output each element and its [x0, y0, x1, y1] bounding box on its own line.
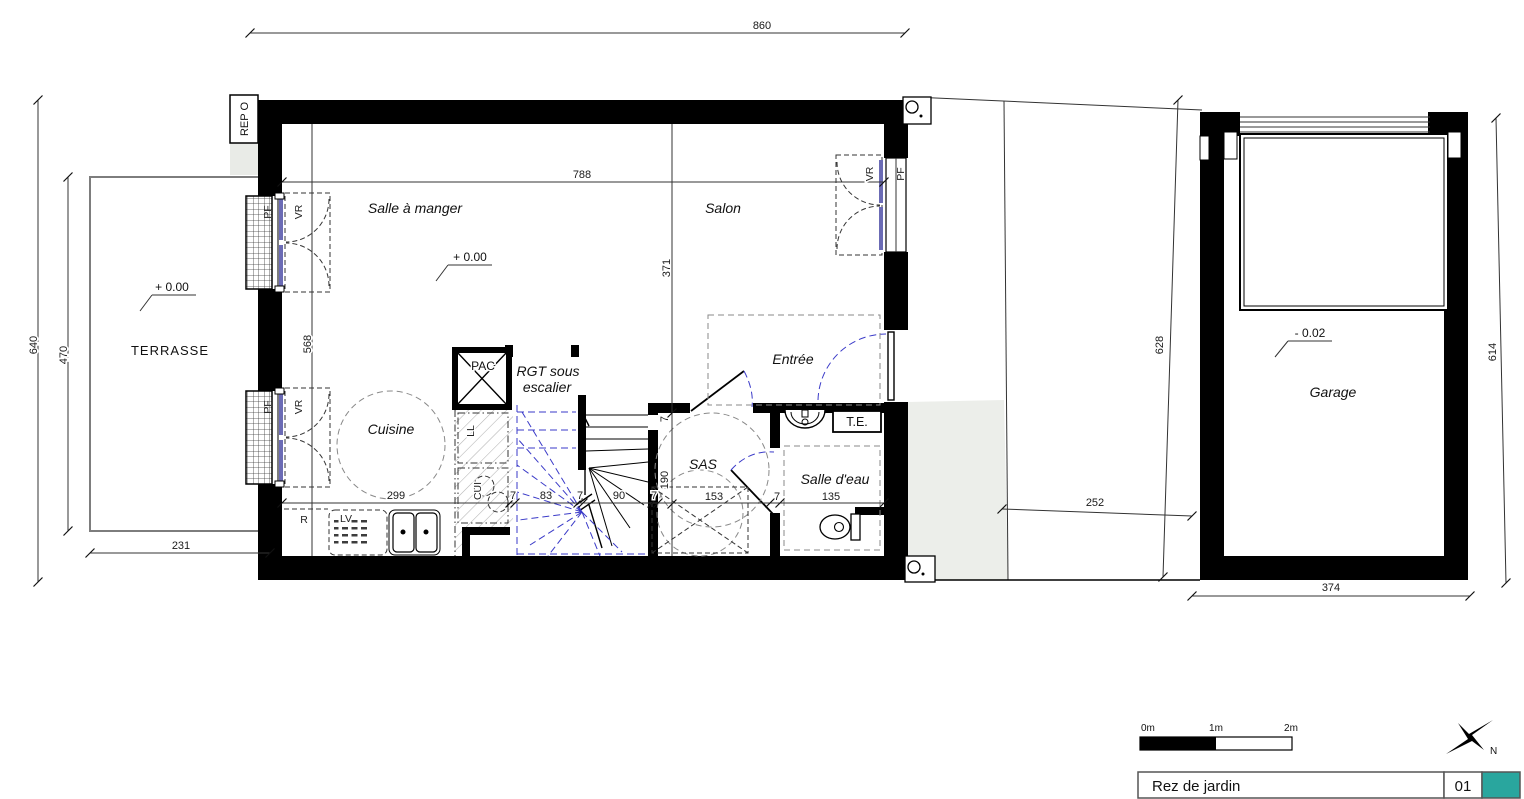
- pf-label: PF: [895, 167, 907, 180]
- drain-icon: [401, 530, 406, 535]
- dim-cuisine-w: 299: [387, 490, 405, 502]
- dim-garage-right: 614: [1487, 343, 1499, 361]
- dim-7: 7: [577, 490, 583, 502]
- scale-2m: 2m: [1284, 723, 1298, 734]
- title-block: Rez de jardin 01: [1138, 772, 1520, 798]
- room-label-salle-a-manger: Salle à manger: [368, 200, 464, 216]
- garage-door-track: [1240, 117, 1430, 132]
- dim-top: 860: [753, 20, 771, 32]
- vr-label: VR: [293, 204, 305, 219]
- dim-garage-left: 628: [1154, 336, 1166, 354]
- dim-sde-w: 135: [822, 491, 840, 503]
- side-path: [908, 400, 1008, 580]
- dim-left-h: 568: [302, 335, 314, 353]
- entrance-door: [818, 332, 894, 400]
- cui-label: CUI: [472, 482, 484, 500]
- pf-label: PF: [262, 205, 274, 218]
- site-area: [230, 97, 1202, 580]
- fridge-label: R: [300, 514, 308, 526]
- level-zero-terrasse: + 0.00: [155, 280, 189, 294]
- terrasse-step: [230, 143, 258, 175]
- dim-7: 7: [510, 490, 516, 502]
- level-garage: - 0.02: [1295, 326, 1326, 340]
- washbasin: [785, 410, 825, 428]
- room-label-salon: Salon: [705, 200, 741, 216]
- north-compass: N: [1446, 720, 1497, 757]
- ll-label: LL: [465, 425, 477, 437]
- garage-notch-right: [1448, 132, 1461, 158]
- garage-structure: [1200, 112, 1468, 580]
- room-label-garage: Garage: [1310, 384, 1357, 400]
- toilet: [820, 514, 860, 540]
- dim-90: 90: [613, 490, 625, 502]
- dim-7: 7: [651, 490, 657, 502]
- door-leaf: [888, 332, 894, 400]
- downspout-icon: [903, 97, 931, 124]
- dim-path-w: 252: [1086, 497, 1104, 509]
- garage-notch-left: [1224, 132, 1237, 159]
- room-label-rgt-1: RGT sous: [516, 363, 579, 379]
- door-swing: [744, 371, 752, 407]
- plan-number: 01: [1455, 778, 1472, 795]
- dim-terrasse-w: 231: [172, 540, 190, 552]
- garage-notch-outer: [1200, 136, 1209, 160]
- drain-icon: [424, 530, 429, 535]
- garage-door-panel: [1240, 134, 1448, 310]
- dim-83: 83: [540, 490, 552, 502]
- compass-star-icon: [1446, 720, 1493, 754]
- plan-title: Rez de jardin: [1152, 778, 1240, 795]
- roller-shutter-box: [285, 388, 330, 487]
- glazing: [279, 198, 283, 240]
- vr-label: VR: [864, 166, 876, 181]
- dim-sas-h: 190: [659, 471, 671, 489]
- downspout-icon: [905, 556, 935, 582]
- vr-label: VR: [293, 399, 305, 414]
- kitchen-turning-circle: [337, 391, 445, 499]
- door-swing: [818, 334, 886, 400]
- scale-bar: 0m 1m 2m: [1140, 723, 1298, 750]
- room-label-cuisine: Cuisine: [368, 421, 415, 437]
- compass-north-label: N: [1490, 746, 1497, 757]
- labels: TERRASSE Salle à manger Salon Cuisine RG…: [131, 166, 1357, 526]
- casement-swing: [837, 206, 880, 249]
- dim-7: 7: [774, 491, 780, 503]
- dim-salon-h: 371: [661, 259, 673, 277]
- rep-marker-label: REP O: [239, 102, 251, 136]
- window-left-1: [246, 193, 330, 292]
- glazing: [279, 440, 283, 482]
- room-label-rgt-2: escalier: [523, 379, 573, 395]
- dim-sas-w: 153: [705, 491, 723, 503]
- glazing: [279, 393, 283, 435]
- casement-swing: [286, 438, 329, 481]
- rep-marker: REP O: [230, 95, 258, 143]
- room-label-terrasse: TERRASSE: [131, 343, 209, 358]
- te-label: T.E.: [846, 415, 868, 429]
- sanitary-zone: [652, 315, 881, 556]
- room-label-sas: SAS: [689, 456, 718, 472]
- sas-reserved-box: [652, 487, 748, 553]
- dim-outer-left: 640: [28, 336, 40, 354]
- glazing: [879, 207, 883, 250]
- pf-label: PF: [262, 400, 274, 413]
- accent-cell: [1482, 772, 1520, 798]
- garage-wall-bottom: [1200, 556, 1468, 580]
- dim-garage-w: 374: [1322, 582, 1340, 594]
- scale-0m: 0m: [1141, 723, 1155, 734]
- door-leaf: [731, 470, 773, 514]
- dishwasher-label: LV: [340, 513, 352, 525]
- room-label-salle-deau: Salle d'eau: [801, 471, 870, 487]
- dim-terrasse-h: 470: [58, 346, 70, 364]
- dim-interior-w: 788: [573, 169, 591, 181]
- scale-1m: 1m: [1209, 723, 1223, 734]
- garage-wall-left: [1200, 112, 1224, 580]
- dim-wall-7: 7: [659, 416, 671, 422]
- roller-shutter-box: [285, 193, 330, 292]
- casement-swing: [286, 243, 329, 286]
- boundary-line-top: [913, 97, 1202, 110]
- level-zero-sejour: + 0.00: [453, 250, 487, 264]
- door-swing: [731, 452, 774, 470]
- glazing: [279, 245, 283, 287]
- floor-plan: REP O TERRASSE Salle à manger: [0, 0, 1524, 799]
- pac-label: PAC: [471, 359, 495, 373]
- window-left-2: [246, 388, 330, 487]
- room-label-entree: Entrée: [772, 351, 813, 367]
